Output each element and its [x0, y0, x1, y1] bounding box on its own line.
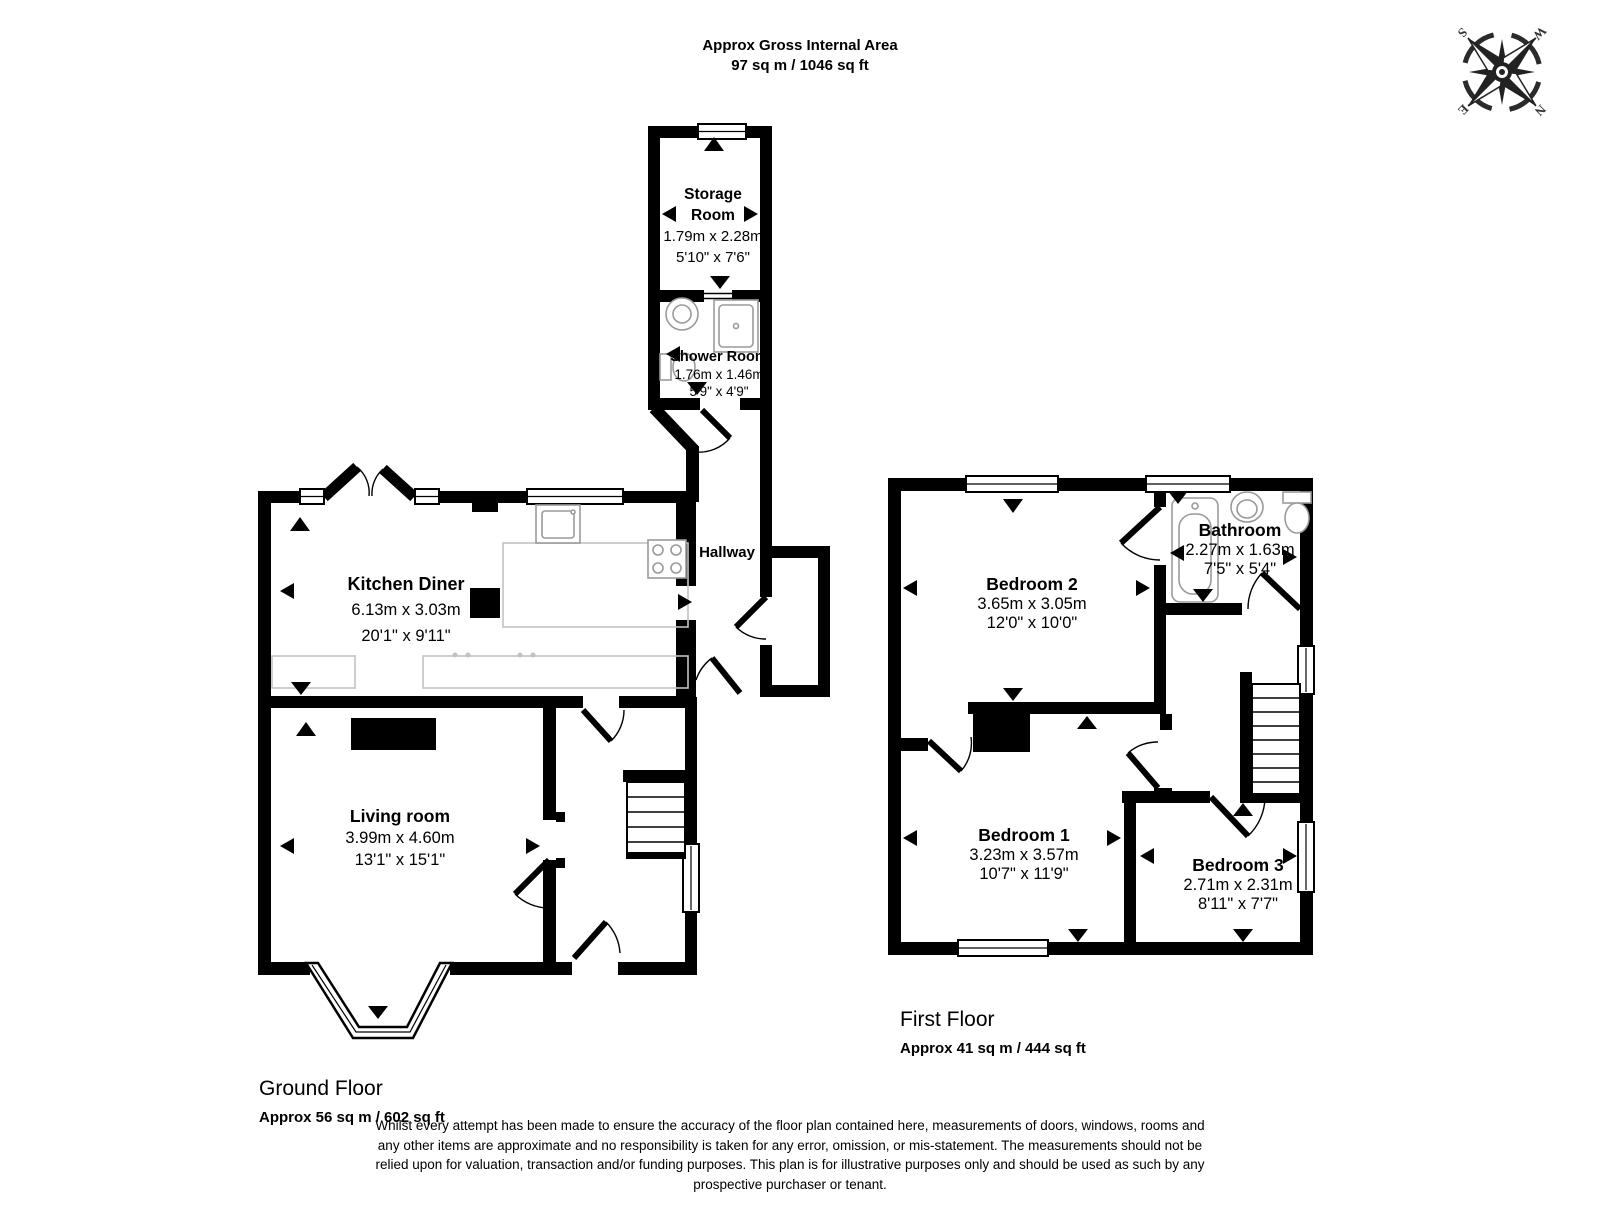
floorplan-page: { "header": { "title": "Approx Gross Int… — [0, 0, 1600, 1224]
bedroom2-imperial: 12'0" x 10'0" — [932, 614, 1132, 634]
room-label-hallway: Hallway — [687, 544, 767, 561]
shower-door-threshold — [704, 294, 732, 299]
shower-room-imperial: 5'9" x 4'9" — [649, 383, 789, 400]
floorplan-canvas: N E S W — [0, 0, 1600, 1224]
bedroom1-landing-door — [1128, 742, 1158, 788]
bedroom1-name: Bedroom 1 — [924, 826, 1124, 846]
shower-room-name: Shower Room — [649, 349, 789, 366]
storage-window — [698, 124, 746, 139]
kitchen-hob — [648, 540, 686, 578]
shower-room-metric: 1.76m x 1.46m — [649, 366, 789, 383]
main-house-walls — [258, 491, 697, 975]
storage-room-name: Storage Room — [670, 184, 756, 226]
room-label-bedroom3: Bedroom 3 2.71m x 2.31m 8'11" x 7'7" — [1148, 856, 1328, 915]
gross-internal-area-header: Approx Gross Internal Area 97 sq m / 104… — [702, 36, 897, 76]
room-label-bathroom: Bathroom 2.27m x 1.63m 7'5" x 5'4" — [1150, 521, 1330, 580]
bedroom3-name: Bedroom 3 — [1148, 856, 1328, 876]
bay-window — [306, 963, 452, 1038]
living-room-imperial: 13'1" x 15'1" — [300, 849, 500, 871]
bedroom1-left-door — [929, 737, 971, 771]
hallway-name: Hallway — [687, 544, 767, 561]
ground-stairs — [627, 782, 685, 858]
room-label-bedroom2: Bedroom 2 3.65m x 3.05m 12'0" x 10'0" — [932, 575, 1132, 634]
room-label-kitchen: Kitchen Diner 6.13m x 3.03m 20'1" x 9'11… — [306, 571, 506, 649]
bedroom2-metric: 3.65m x 3.05m — [932, 595, 1132, 615]
front-door — [574, 922, 620, 958]
room-label-storage: Storage Room 1.79m x 2.28m 5'10" x 7'6" — [648, 184, 778, 268]
disclaimer-text: Whilst every attempt has been made to en… — [368, 1116, 1213, 1194]
bathroom-imperial: 7'5" x 5'4" — [1150, 560, 1330, 580]
porch-door — [736, 597, 766, 639]
living-fireplace — [351, 718, 436, 750]
compass-south-label: S — [1455, 25, 1471, 41]
bedroom1-metric: 3.23m x 3.57m — [924, 846, 1124, 866]
bedroom3-metric: 2.71m x 2.31m — [1148, 876, 1328, 896]
storage-room-imperial: 5'10" x 7'6" — [648, 247, 778, 268]
header-title: Approx Gross Internal Area — [702, 36, 897, 56]
bathroom-toilet — [1283, 492, 1311, 503]
storage-room-metric: 1.79m x 2.28m — [648, 226, 778, 247]
first-floor-stairs — [1252, 684, 1300, 794]
kitchen-french-doors — [324, 467, 414, 497]
room-label-shower: Shower Room 1.76m x 1.46m 5'9" x 4'9" — [649, 349, 789, 400]
bedroom2-name: Bedroom 2 — [932, 575, 1132, 595]
kitchen-name: Kitchen Diner — [306, 571, 506, 597]
compass-icon: N E S W — [1416, 0, 1588, 157]
bedroom1-imperial: 10'7" x 11'9" — [924, 865, 1124, 885]
ground-floor-title: Ground Floor — [259, 1077, 383, 1101]
room-label-bedroom1: Bedroom 1 3.23m x 3.57m 10'7" x 11'9" — [924, 826, 1124, 885]
living-room-metric: 3.99m x 4.60m — [300, 827, 500, 849]
kitchen-metric: 6.13m x 3.03m — [306, 597, 506, 623]
bathroom-name: Bathroom — [1150, 521, 1330, 541]
kitchen-imperial: 20'1" x 9'11" — [306, 623, 506, 649]
room-label-living: Living room 3.99m x 4.60m 13'1" x 15'1" — [300, 805, 500, 871]
living-room-name: Living room — [300, 805, 500, 827]
hallway-bottom-door — [696, 658, 740, 693]
header-area: 97 sq m / 1046 sq ft — [702, 56, 897, 76]
kitchen-hall-door — [583, 710, 624, 741]
first-floor-area: Approx 41 sq m / 444 sq ft — [900, 1040, 1086, 1057]
bedroom3-imperial: 8'11" x 7'7" — [1148, 895, 1328, 915]
first-floor-title: First Floor — [900, 1008, 995, 1032]
shower-room-door — [695, 410, 730, 452]
bathroom-metric: 2.27m x 1.63m — [1150, 541, 1330, 561]
